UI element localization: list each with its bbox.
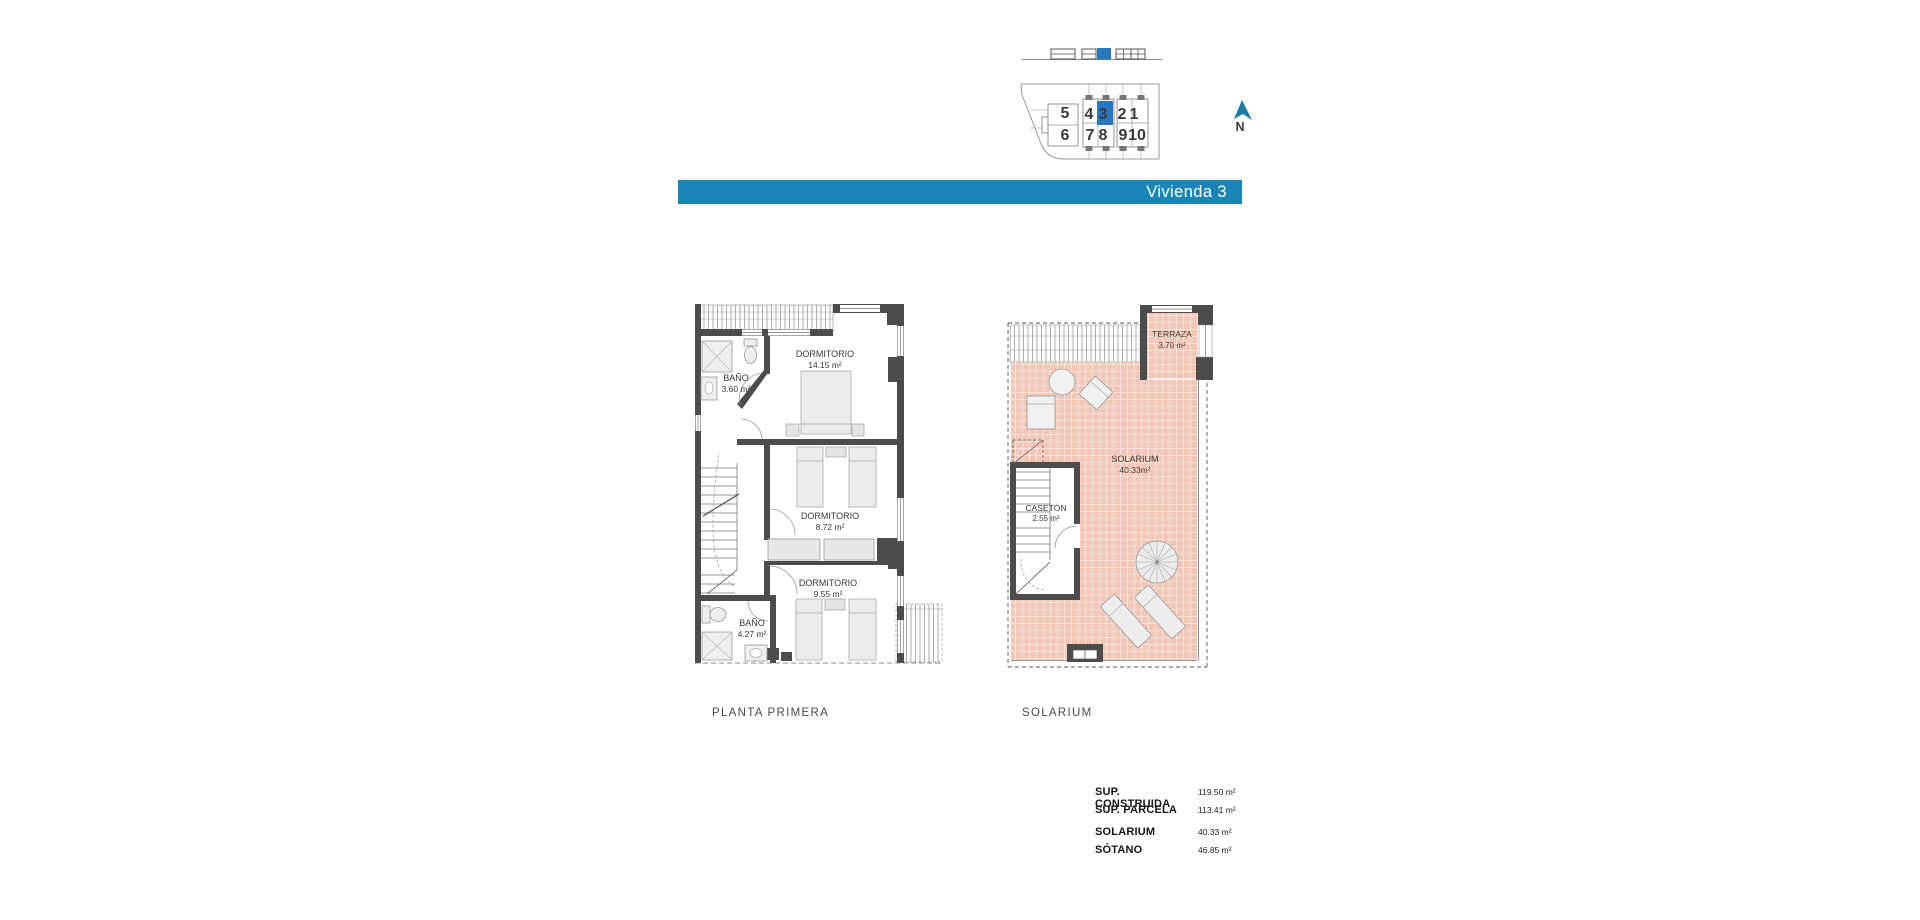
hatched-terrace-top [700, 305, 833, 331]
dormitorio-3-area: 9.55 m² [814, 589, 843, 599]
summary-row: SOLARIUM 40.33 m² [1095, 826, 1255, 844]
dormitorio-3-label: DORMITORIO [799, 578, 857, 588]
surface-summary: SUP. CONSTRUIDA 119.50 m² SUP. PARCELA 1… [1095, 786, 1255, 861]
summary-value: 113.41 m² [1198, 805, 1236, 815]
staircase [701, 455, 739, 594]
unit-number-1: 1 [1130, 106, 1139, 123]
caseton-label: CASETÓN [1025, 503, 1066, 513]
unit-number-8: 8 [1099, 127, 1108, 144]
page-title: Vivienda 3 [1146, 183, 1227, 202]
north-arrow-icon: N [1234, 100, 1252, 134]
bano-2-area: 4.27 m² [738, 629, 767, 639]
caption-planta-primera: PLANTA PRIMERA [712, 707, 829, 719]
summary-value: 119.50 m² [1198, 787, 1236, 797]
elevation-highlighted-unit [1097, 48, 1111, 60]
summary-row: SUP. PARCELA 113.41 m² [1095, 804, 1255, 822]
site-plan: 5 4 3 2 1 6 7 8 9 10 [1021, 84, 1159, 159]
summary-value: 46.85 m² [1198, 845, 1232, 855]
dormitorio-2-label: DORMITORIO [801, 511, 859, 521]
caseton-area: 2.55 m² [1032, 514, 1059, 523]
summary-label: SÓTANO [1095, 844, 1198, 856]
unit-number-3: 3 [1099, 106, 1108, 123]
spiral-stair [1136, 541, 1178, 583]
floor-plan-planta-primera: DORMITORIO 14.15 m² BAÑO 3.60 m² DORMITO… [690, 298, 965, 670]
site-location-graphics: 5 4 3 2 1 6 7 8 9 10 N [1015, 30, 1265, 165]
unit-number-4: 4 [1085, 106, 1094, 123]
solarium-label: SOLARIUM [1111, 454, 1158, 464]
chimney-block [1067, 644, 1103, 662]
summary-row: SÓTANO 46.85 m² [1095, 844, 1255, 862]
north-label: N [1235, 120, 1244, 134]
elevation-sketch [1022, 48, 1162, 60]
terraza-area: 3.70 m² [1158, 341, 1185, 350]
bano-1-area: 3.60 m² [722, 384, 751, 394]
solarium-area: 40.33m² [1119, 465, 1150, 475]
unit-number-9: 9 [1119, 127, 1128, 144]
unit-number-2: 2 [1118, 106, 1127, 123]
summary-value: 40.33 m² [1198, 827, 1232, 837]
summary-label: SUP. PARCELA [1095, 804, 1198, 816]
title-bar: Vivienda 3 [678, 180, 1242, 204]
unit-number-5: 5 [1061, 105, 1070, 122]
dormitorio-1-label: DORMITORIO [796, 349, 854, 359]
dormitorio-2-area: 8.72 m² [816, 522, 845, 532]
floor-plan-solarium: TERRAZA 3.70 m² SOLARIUM 40.33m² CASETÓN… [1005, 298, 1280, 673]
dormitorio-1-area: 14.15 m² [808, 360, 842, 370]
unit-number-10: 10 [1128, 127, 1146, 144]
caption-solarium: SOLARIUM [1022, 707, 1092, 719]
hatched-pergola-strip [1010, 325, 1140, 362]
unit-number-6: 6 [1061, 127, 1070, 144]
summary-label: SOLARIUM [1095, 826, 1198, 838]
bano-1-label: BAÑO [723, 373, 749, 383]
bano-2-label: BAÑO [739, 618, 765, 628]
closets [768, 539, 874, 560]
terraza-label: TERRAZA [1152, 329, 1192, 339]
summary-row: SUP. CONSTRUIDA 119.50 m² [1095, 786, 1255, 804]
unit-number-7: 7 [1086, 127, 1095, 144]
